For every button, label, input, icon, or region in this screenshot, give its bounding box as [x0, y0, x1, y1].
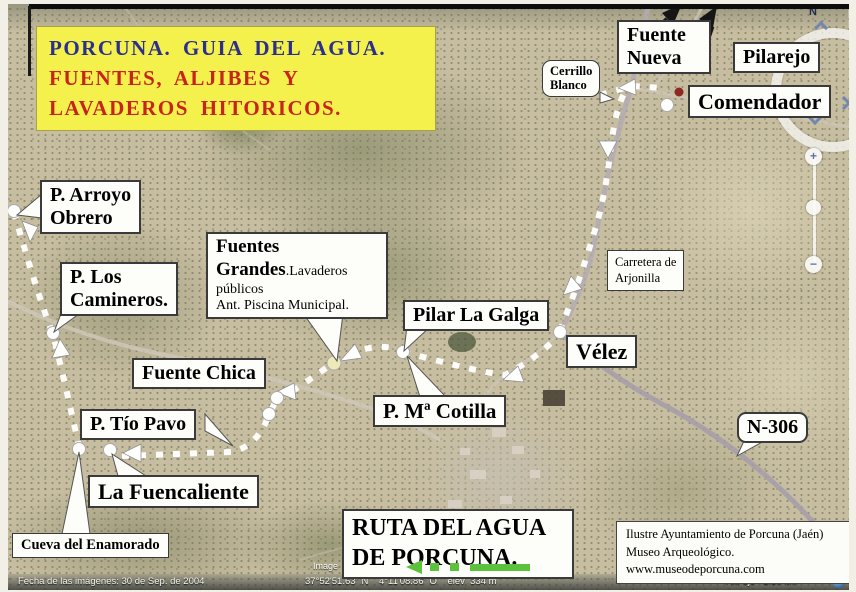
map-left-edge-line	[28, 6, 31, 76]
zoom-out-button[interactable]: −	[805, 256, 822, 273]
route-direction-arrow-icon	[406, 560, 556, 574]
credit-box: Ilustre Ayuntamiento de Porcuna (Jaén) M…	[616, 521, 850, 584]
map-top-edge-line	[29, 4, 849, 9]
zoom-in-button[interactable]: +	[805, 148, 822, 165]
map-title-line1: PORCUNA. GUIA DEL AGUA.	[49, 34, 423, 64]
label-pilarejo: Pilarejo	[733, 42, 820, 73]
label-arroyo-obrero: P. Arroyo Obrero	[40, 180, 141, 234]
imagery-attribution: Image	[313, 561, 338, 571]
label-velez: Vélez	[566, 335, 637, 368]
label-los-camineros: P. Los Camineros.	[60, 262, 178, 316]
comendador-red-dot	[675, 88, 684, 97]
label-fuentes-grandes: Fuentes Grandes.Lavaderos públicos Ant. …	[206, 232, 388, 319]
zoom-slider-handle[interactable]	[806, 200, 821, 215]
label-tio-pavo: P. Tío Pavo	[80, 409, 196, 440]
label-pilar-la-galga: Pilar La Galga	[403, 300, 549, 331]
scan-border-right	[849, 0, 856, 592]
label-fuente-nueva: Fuente Nueva	[617, 20, 711, 74]
label-comendador: Comendador	[688, 85, 831, 118]
label-ma-cotilla: P. Mª Cotilla	[373, 395, 506, 427]
imagery-date: Fecha de las imágenes: 30 de Sep. de 200…	[18, 576, 204, 587]
map-title-box: PORCUNA. GUIA DEL AGUA. FUENTES, ALJIBES…	[36, 26, 436, 131]
pan-up-chevron-icon[interactable]	[815, 20, 826, 31]
label-cerrillo-blanco: Cerrillo Blanco	[542, 60, 600, 97]
museum-website-link[interactable]: www.museodeporcuna.com	[626, 561, 840, 579]
map-title-line2: FUENTES, ALJIBES Y	[49, 64, 423, 94]
map-title-line3: LAVADEROS HITORICOS.	[49, 94, 423, 124]
label-carretera-arjonilla: Carretera de Arjonilla	[607, 250, 684, 291]
ruta-del-agua-box: RUTA DEL AGUA DE PORCUNA.	[342, 509, 574, 579]
label-n306: N-306	[737, 412, 808, 443]
porcuna-water-route-map-screenshot: Fecha de las imágenes: 30 de Sep. de 200…	[0, 0, 856, 592]
scan-border-left	[0, 0, 8, 592]
label-fuente-chica: Fuente Chica	[132, 358, 266, 389]
label-la-fuencaliente: La Fuencaliente	[88, 475, 259, 508]
label-cueva-enamorado: Cueva del Enamorado	[12, 533, 169, 558]
